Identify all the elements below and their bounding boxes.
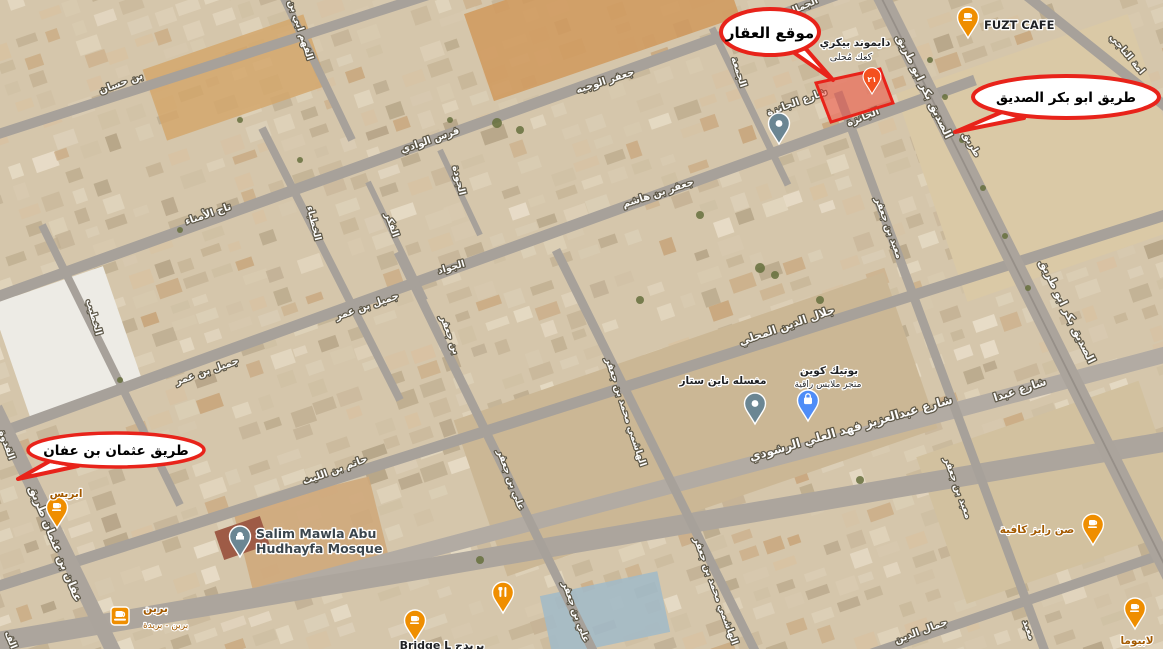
poi-label-boutique: بوتيك كوين xyxy=(800,365,858,377)
satellite-map[interactable]: بن حسان الفهم ابي بن تاج الأمناء الخطباء… xyxy=(0,0,1163,649)
poi-label-breen-sub: برين - بريدة xyxy=(143,621,188,631)
poi-label-bakery: دايموند بيكري xyxy=(820,37,891,49)
poi-label-labioma: لابيوما xyxy=(1120,635,1153,647)
poi-label-mosque-line1: Salim Mawla Abu xyxy=(256,526,376,541)
poi-label-sunrise: صن رايز كافية xyxy=(1000,524,1075,536)
poi-label-fuzt: FUZT CAFE xyxy=(984,18,1055,32)
parcel-pin-number: ٢١ xyxy=(867,75,876,84)
poi-label-laundry: مغسله ناين ستار xyxy=(679,375,767,387)
callout-abubakr-label: طريق ابو بكر الصديق xyxy=(996,90,1136,106)
cafe-icon-breen[interactable] xyxy=(111,607,129,625)
callout-property-label: موقع العقار xyxy=(725,24,814,42)
poi-label-mosque-line2: Hudhayfa Mosque xyxy=(256,541,382,556)
poi-label-breen: برين xyxy=(143,602,168,615)
poi-label-bakery-sub: كعك مُحلى xyxy=(830,52,873,63)
poi-label-bridge: Bridge L بريدج xyxy=(400,639,485,649)
callout-othman-label: طريق عثمان بن عفان xyxy=(43,443,189,459)
poi-label-boutique-sub: متجر ملابس راقية xyxy=(795,380,862,390)
poi-label-ibrees: ابريس xyxy=(50,488,83,500)
map-viewport[interactable]: بن حسان الفهم ابي بن تاج الأمناء الخطباء… xyxy=(0,0,1163,649)
